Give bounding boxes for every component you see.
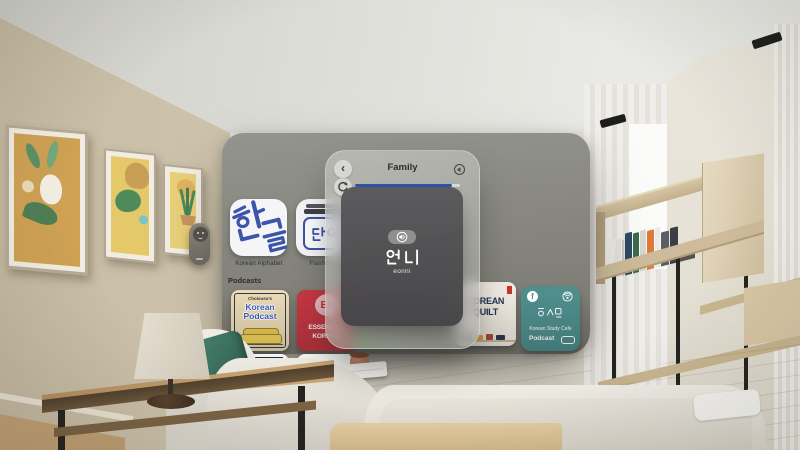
lamp-shade [134, 313, 210, 379]
persona-icon[interactable] [192, 226, 209, 243]
wall-art-frame-2 [104, 148, 156, 263]
art1-vase [40, 173, 62, 205]
podcast-title-2: Podcast [231, 311, 289, 321]
quilt-block [496, 335, 505, 340]
app-label: Korean Alphabet [220, 261, 298, 267]
couch-backrest-illustration [243, 328, 279, 338]
speak-button[interactable] [388, 230, 416, 244]
persona-eyes [197, 232, 199, 234]
podcast-title: Korean [231, 302, 289, 312]
window-control-pill[interactable] [189, 223, 210, 265]
flashcard-panel[interactable]: ‹ Family [325, 150, 480, 349]
podcast-waves-icon [562, 291, 573, 302]
cafe-logo-glyph [537, 306, 563, 320]
table-leg [298, 386, 305, 450]
pill-dash[interactable] [196, 258, 203, 260]
wall-art-2 [111, 156, 149, 256]
flashcard[interactable]: eonni [341, 187, 463, 326]
art2-monstera [113, 188, 143, 213]
podcasts-section-label: Podcasts [228, 276, 261, 285]
audio-settings-icon[interactable] [453, 163, 466, 176]
korean-alphabet-app-icon[interactable] [230, 199, 287, 256]
wall-art-frame-1 [6, 124, 88, 275]
speaker-icon [396, 231, 408, 243]
shelf-lower-box [744, 279, 800, 346]
korean-word-glyph [385, 249, 421, 265]
pot-rim [350, 352, 369, 358]
art1-leaf [45, 140, 61, 170]
visionos-scene: Korean Alphabet Flashcards [0, 0, 800, 450]
wall-art-1 [14, 133, 80, 267]
art1-leaf [23, 142, 43, 170]
cafe-sub: Podcast [529, 335, 554, 342]
facebook-icon: f [527, 291, 538, 302]
art2-dot [139, 215, 148, 225]
art1-dot [22, 180, 34, 193]
romanization: eonni [341, 268, 463, 275]
coffee-table [330, 423, 562, 450]
lamp-base [147, 394, 195, 409]
hangeul-calligraphy-glyph [230, 199, 287, 256]
red-seal [507, 286, 512, 294]
art2-blob [125, 161, 149, 190]
cafe-badge-pill [561, 336, 575, 344]
persona-smile [198, 235, 203, 239]
shelf-side-panel [702, 153, 764, 283]
podcast-tile-korean-study-cafe[interactable]: f Korean Study Cafe Podcast [521, 286, 580, 351]
podcast-author: Choisusu's [231, 296, 289, 301]
quilt-block [486, 334, 493, 340]
cafe-name: Korean Study Cafe [521, 326, 580, 332]
